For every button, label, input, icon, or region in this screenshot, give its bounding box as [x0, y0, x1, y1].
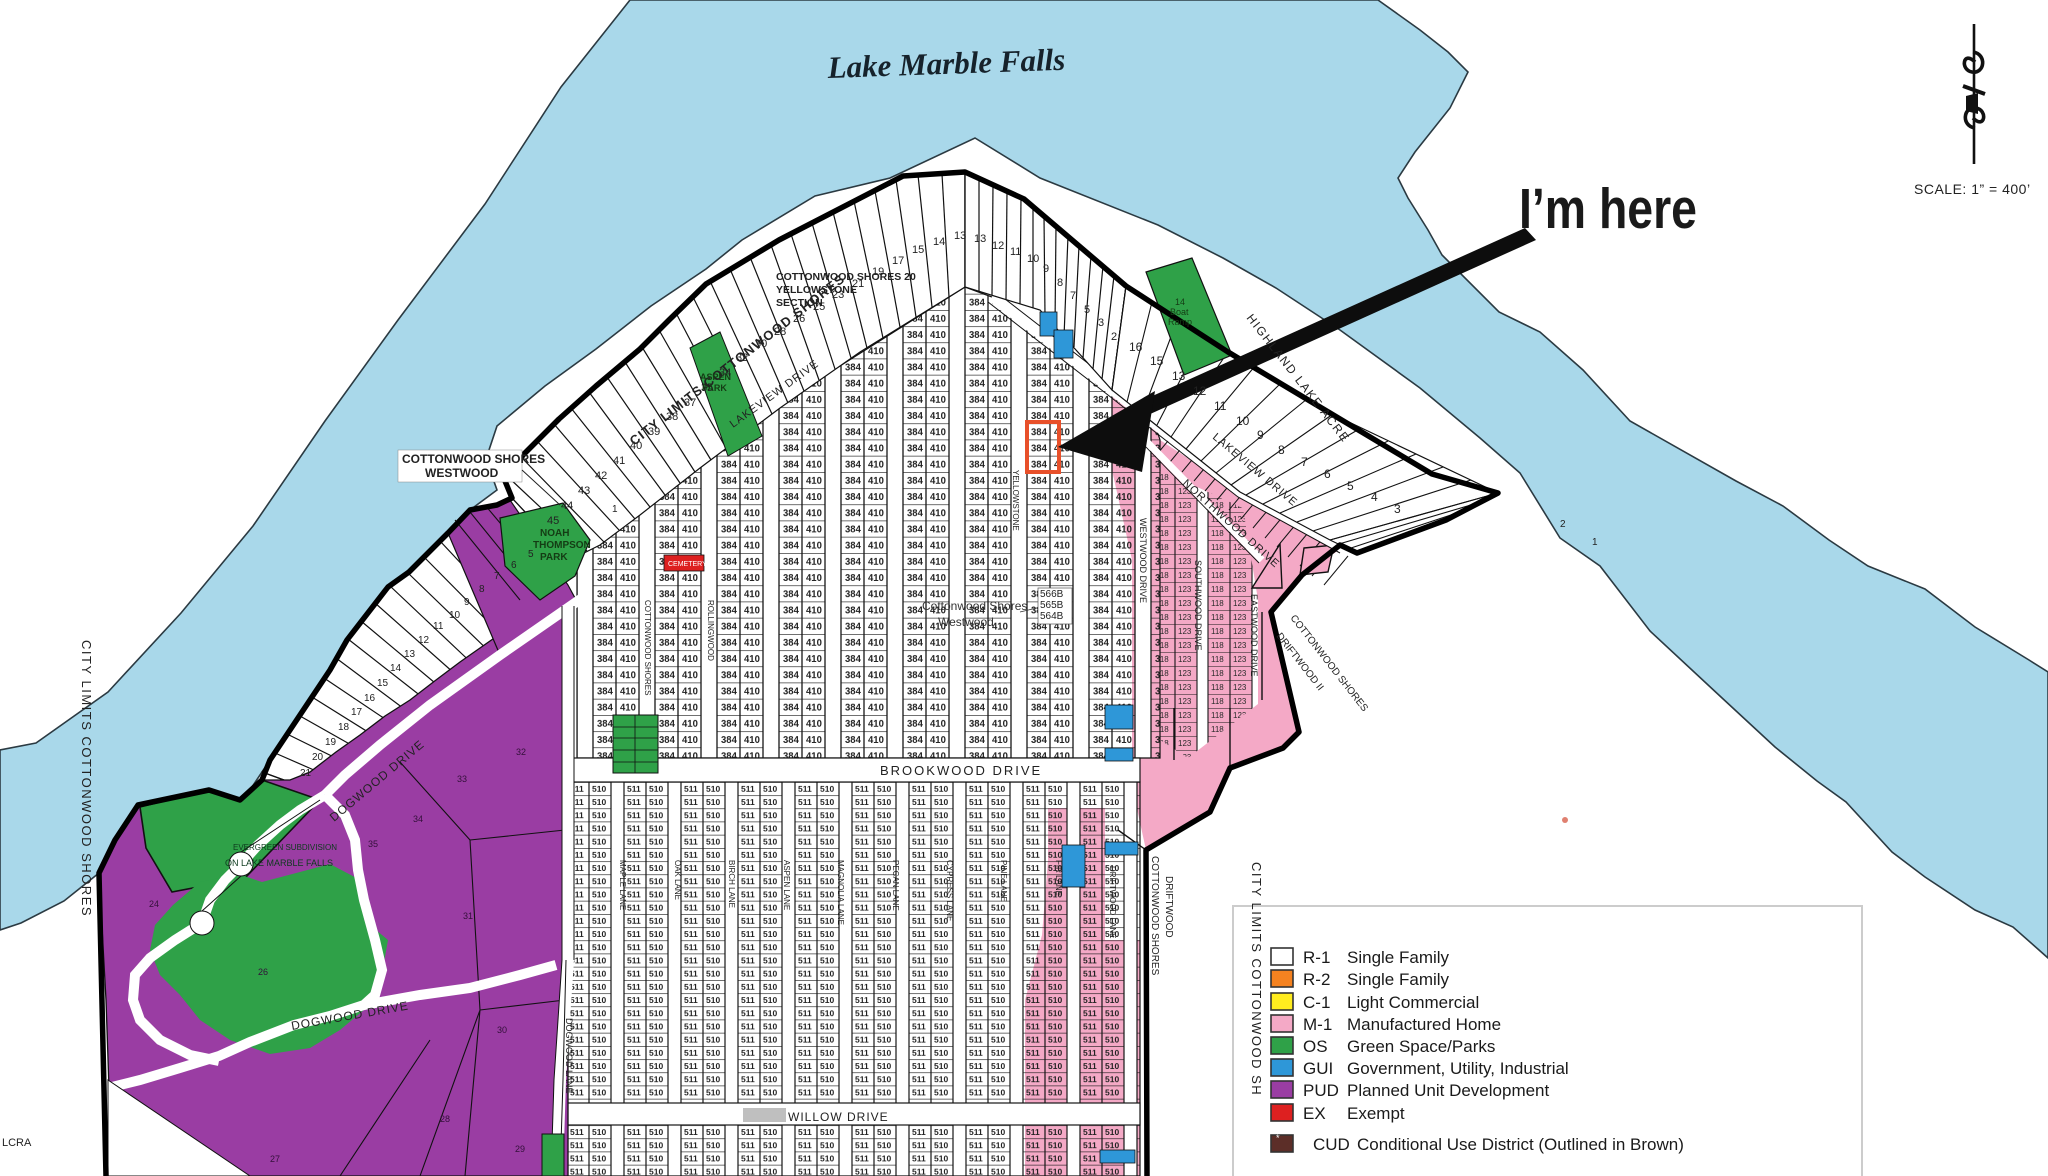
- svg-text:3: 3: [1394, 502, 1401, 516]
- svg-text:11: 11: [433, 621, 444, 632]
- svg-text:20: 20: [312, 752, 324, 763]
- svg-text:28: 28: [440, 1114, 450, 1124]
- svg-text:26: 26: [793, 313, 805, 325]
- svg-text:8: 8: [479, 584, 485, 595]
- svg-text:M-1: M-1: [1303, 1015, 1332, 1034]
- svg-text:40: 40: [630, 440, 642, 452]
- svg-text:WESTWOOD DRIVE: WESTWOOD DRIVE: [1138, 518, 1148, 603]
- svg-text:PARK: PARK: [540, 552, 568, 563]
- svg-text:EVERGREEN SUBDIVISION: EVERGREEN SUBDIVISION: [233, 843, 337, 852]
- svg-text:8: 8: [1057, 277, 1063, 289]
- svg-text:45: 45: [547, 515, 559, 527]
- svg-text:I’m here: I’m here: [1519, 177, 1697, 241]
- svg-text:32: 32: [736, 352, 748, 364]
- svg-text:CITY LIMITS COTTONWOOD SHORES: CITY LIMITS COTTONWOOD SHORES: [79, 640, 94, 917]
- svg-text:11: 11: [1010, 246, 1021, 258]
- svg-text:7: 7: [494, 571, 500, 582]
- svg-text:CUD: CUD: [1313, 1135, 1350, 1154]
- svg-text:10: 10: [449, 610, 461, 621]
- svg-text:R-1: R-1: [1303, 948, 1330, 967]
- svg-text:43: 43: [578, 485, 590, 497]
- svg-text:38: 38: [666, 411, 678, 423]
- svg-text:15: 15: [912, 244, 924, 256]
- svg-text:THOMPSON: THOMPSON: [533, 540, 591, 551]
- svg-text:11: 11: [1214, 399, 1227, 413]
- svg-text:5: 5: [1347, 479, 1354, 493]
- svg-text:9: 9: [1257, 428, 1264, 442]
- svg-text:34: 34: [719, 367, 731, 379]
- svg-text:DRIFTWOOD: DRIFTWOOD: [1163, 876, 1174, 938]
- svg-text:YELLOWSTONE: YELLOWSTONE: [776, 284, 857, 296]
- svg-text:PECAN LANE: PECAN LANE: [891, 860, 900, 911]
- svg-text:564B: 564B: [1040, 611, 1064, 622]
- svg-text:13: 13: [954, 230, 966, 242]
- svg-text:44: 44: [561, 500, 573, 512]
- svg-text:10: 10: [1236, 414, 1250, 428]
- svg-text:EASTWOOD DRIVE: EASTWOOD DRIVE: [1249, 594, 1259, 677]
- svg-text:31: 31: [463, 911, 473, 921]
- svg-text:BROOKWOOD DRIVE: BROOKWOOD DRIVE: [880, 763, 1042, 778]
- svg-text:GUI: GUI: [1303, 1059, 1333, 1078]
- svg-text:1: 1: [1592, 537, 1598, 548]
- svg-text:ROLLINGWOOD: ROLLINGWOOD: [706, 600, 715, 661]
- svg-text:ASPEN LANE: ASPEN LANE: [782, 860, 791, 910]
- svg-text:15: 15: [377, 678, 389, 689]
- svg-text:LCRA: LCRA: [2, 1137, 32, 1149]
- svg-text:41: 41: [613, 455, 625, 467]
- svg-text:12: 12: [418, 635, 430, 646]
- svg-text:Conditional Use District (Outl: Conditional Use District (Outlined in Br…: [1357, 1135, 1684, 1154]
- svg-text:Boat: Boat: [1170, 307, 1189, 317]
- svg-text:Single Family: Single Family: [1347, 948, 1450, 967]
- svg-text:14: 14: [1175, 297, 1185, 307]
- svg-text:CEMETERY: CEMETERY: [668, 561, 707, 568]
- svg-text:13: 13: [404, 649, 416, 660]
- svg-text:OAK LANE: OAK LANE: [673, 860, 682, 900]
- svg-text:NOAH: NOAH: [540, 528, 569, 539]
- svg-text:34: 34: [413, 814, 423, 824]
- svg-text:33: 33: [457, 774, 467, 784]
- svg-text:SOUTHWOOD DRIVE: SOUTHWOOD DRIVE: [1193, 560, 1203, 651]
- svg-text:13: 13: [1172, 369, 1186, 383]
- svg-text:Westwood: Westwood: [938, 615, 994, 629]
- svg-text:12: 12: [992, 240, 1004, 252]
- svg-text:Government, Utility, Industria: Government, Utility, Industrial: [1347, 1059, 1569, 1078]
- svg-text:9: 9: [464, 597, 470, 608]
- svg-text:29: 29: [515, 1144, 525, 1154]
- svg-text:SCALE: 1” = 400’: SCALE: 1” = 400’: [1914, 181, 2031, 197]
- svg-text:19: 19: [325, 737, 337, 748]
- svg-text:23: 23: [832, 289, 844, 301]
- svg-text:Exempt: Exempt: [1347, 1104, 1405, 1123]
- svg-text:6: 6: [1324, 467, 1331, 481]
- svg-text:*: *: [1276, 1133, 1280, 1143]
- svg-text:17: 17: [892, 255, 904, 267]
- svg-text:5: 5: [528, 549, 534, 560]
- svg-text:1: 1: [612, 504, 618, 515]
- svg-text:15: 15: [1150, 354, 1164, 368]
- svg-text:26: 26: [258, 967, 268, 977]
- svg-text:Green Space/Parks: Green Space/Parks: [1347, 1037, 1495, 1056]
- svg-text:19: 19: [872, 266, 884, 278]
- svg-text:566B: 566B: [1040, 589, 1064, 600]
- svg-text:7: 7: [1301, 455, 1308, 469]
- svg-text:9: 9: [1043, 263, 1049, 275]
- svg-text:2: 2: [1111, 331, 1117, 343]
- svg-text:12: 12: [1193, 384, 1207, 398]
- svg-text:39: 39: [648, 426, 660, 438]
- svg-text:30: 30: [497, 1025, 507, 1035]
- svg-text:25: 25: [813, 301, 825, 313]
- svg-text:OS: OS: [1303, 1037, 1328, 1056]
- svg-text:ON LAKE MARBLE FALLS: ON LAKE MARBLE FALLS: [225, 858, 333, 868]
- svg-text:24: 24: [149, 899, 159, 909]
- svg-text:6: 6: [511, 560, 517, 571]
- svg-text:14: 14: [933, 236, 945, 248]
- svg-text:18: 18: [338, 722, 350, 733]
- svg-text:WILLOW DRIVE: WILLOW DRIVE: [788, 1110, 889, 1124]
- svg-text:16: 16: [1129, 340, 1143, 354]
- svg-text:13: 13: [974, 233, 986, 245]
- svg-text:4: 4: [1371, 490, 1378, 504]
- svg-text:CITY LIMITS COTTONWOOD SH: CITY LIMITS COTTONWOOD SH: [1249, 862, 1264, 1096]
- svg-text:CYPRESS LANE: CYPRESS LANE: [945, 860, 954, 921]
- svg-text:DOGWOOD LANE: DOGWOOD LANE: [564, 1018, 574, 1094]
- svg-text:EX: EX: [1303, 1104, 1326, 1123]
- svg-text:30: 30: [755, 338, 767, 350]
- svg-text:2: 2: [1560, 519, 1566, 530]
- svg-text:Planned Unit Development: Planned Unit Development: [1347, 1081, 1550, 1100]
- svg-text:32: 32: [516, 747, 526, 757]
- svg-text:PINE LANE: PINE LANE: [999, 860, 1008, 902]
- svg-text:16: 16: [364, 693, 376, 704]
- svg-text:42: 42: [595, 470, 607, 482]
- svg-text:Single Family: Single Family: [1347, 970, 1450, 989]
- svg-text:MAPLE LANE: MAPLE LANE: [618, 860, 627, 910]
- svg-text:8: 8: [1278, 443, 1285, 457]
- svg-text:COTTONWOOD SHORES: COTTONWOOD SHORES: [402, 452, 545, 466]
- svg-text:MAGNOLIA LANE: MAGNOLIA LANE: [836, 860, 845, 925]
- svg-text:5: 5: [1084, 304, 1090, 316]
- svg-text:21: 21: [300, 768, 312, 779]
- svg-text:14: 14: [390, 663, 402, 674]
- svg-text:DRIFTWOOD LANE: DRIFTWOOD LANE: [1108, 866, 1117, 938]
- svg-text:WESTWOOD: WESTWOOD: [425, 466, 499, 480]
- svg-text:C-1: C-1: [1303, 993, 1330, 1012]
- svg-text:27: 27: [270, 1154, 280, 1164]
- svg-text:3: 3: [1098, 317, 1104, 329]
- svg-text:10: 10: [1027, 253, 1039, 265]
- svg-text:17: 17: [351, 707, 363, 718]
- svg-text:Ramp: Ramp: [1168, 317, 1192, 327]
- svg-text:28: 28: [774, 326, 786, 338]
- svg-text:37: 37: [684, 397, 696, 409]
- svg-text:R-2: R-2: [1303, 970, 1330, 989]
- svg-text:COTTONWOOD SHORES: COTTONWOOD SHORES: [643, 600, 652, 695]
- svg-text:COTTONWOOD SHORES: COTTONWOOD SHORES: [1149, 856, 1160, 976]
- svg-text:35: 35: [701, 382, 713, 394]
- svg-text:BIRCH LANE: BIRCH LANE: [727, 860, 736, 908]
- svg-text:FIR LANE: FIR LANE: [1054, 860, 1063, 896]
- svg-text:7: 7: [1070, 290, 1076, 302]
- svg-text:35: 35: [368, 839, 378, 849]
- svg-text:YELLOWSTONE: YELLOWSTONE: [1011, 470, 1020, 531]
- svg-text:Light Commercial: Light Commercial: [1347, 993, 1479, 1012]
- svg-text:COTTONWOOD SHORES 20: COTTONWOOD SHORES 20: [776, 271, 916, 283]
- svg-text:PUD: PUD: [1303, 1081, 1339, 1100]
- svg-text:Cottonwood Shores: Cottonwood Shores: [922, 599, 1027, 613]
- svg-text:565B: 565B: [1040, 600, 1064, 611]
- svg-text:Manufactured Home: Manufactured Home: [1347, 1015, 1501, 1034]
- svg-text:21: 21: [852, 278, 864, 290]
